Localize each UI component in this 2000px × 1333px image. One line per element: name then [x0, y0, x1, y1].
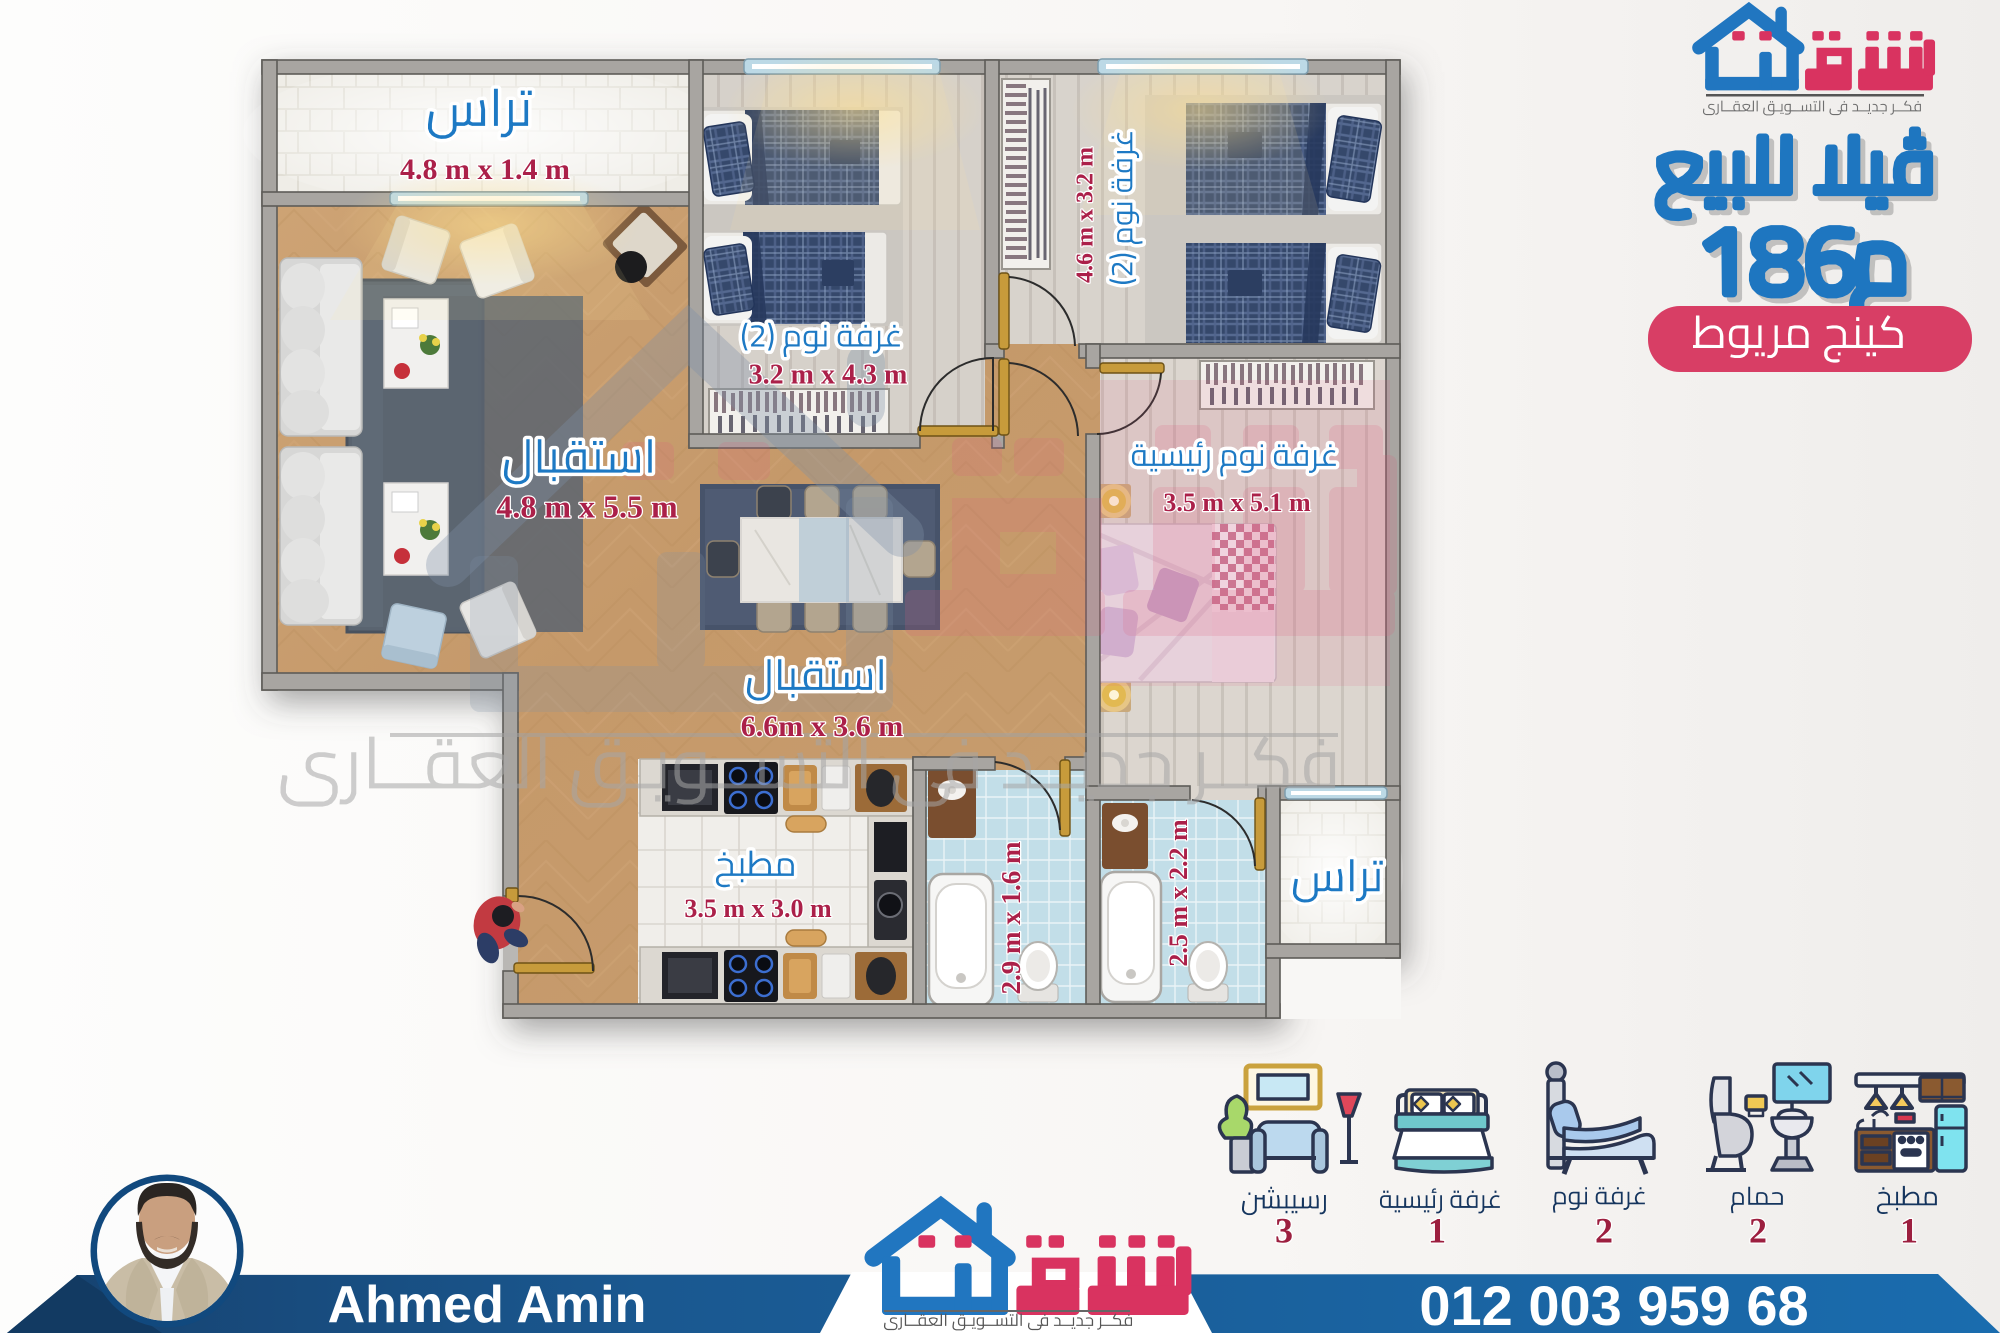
svg-text:1: 1: [1428, 1210, 1446, 1250]
svg-text:Ahmed Amin: Ahmed Amin: [328, 1276, 647, 1333]
svg-text:4.8 m x 5.5 m: 4.8 m x 5.5 m: [496, 488, 678, 524]
svg-text:4.6 m x 3.2 m: 4.6 m x 3.2 m: [1073, 147, 1099, 283]
svg-text:4.8 m x 1.4 m: 4.8 m x 1.4 m: [400, 153, 570, 186]
svg-text:6.6m x 3.6 m: 6.6m x 3.6 m: [741, 710, 903, 743]
svg-text:3.2 m x 4.3 m: 3.2 m x 4.3 m: [749, 359, 908, 390]
svg-text:3.5 m x 3.0 m: 3.5 m x 3.0 m: [684, 894, 832, 923]
svg-text:2.5 m x 2.2 m: 2.5 m x 2.2 m: [1164, 819, 1193, 967]
svg-text:2: 2: [1595, 1210, 1613, 1250]
svg-text:3: 3: [1275, 1210, 1293, 1250]
svg-text:2: 2: [1749, 1210, 1767, 1250]
svg-text:2.9 m x 1.6 m: 2.9 m x 1.6 m: [996, 841, 1026, 994]
svg-text:1: 1: [1900, 1210, 1918, 1250]
svg-text:3.5 m x 5.1 m: 3.5 m x 5.1 m: [1163, 488, 1311, 517]
svg-text:012 003 959 68: 012 003 959 68: [1419, 1274, 1808, 1333]
